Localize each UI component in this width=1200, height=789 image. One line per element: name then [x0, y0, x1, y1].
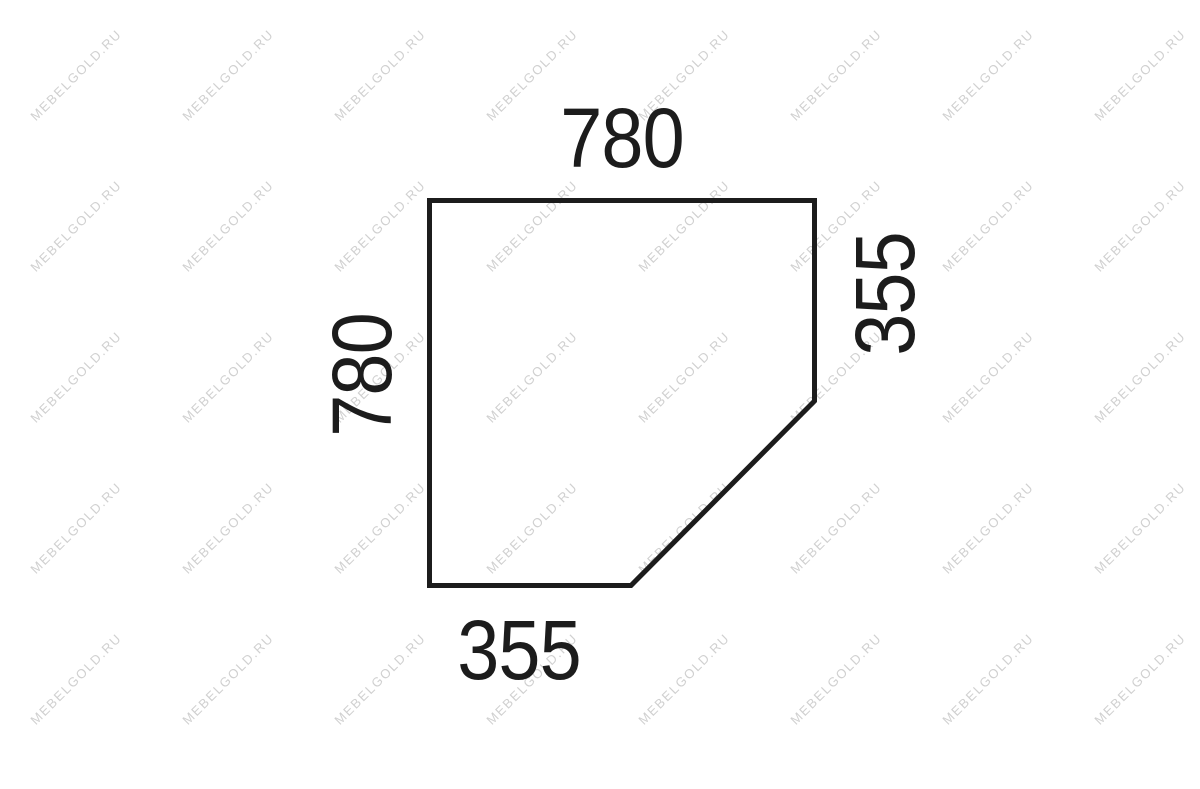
dimension-label-top: 780	[560, 96, 683, 180]
diagram-canvas: MEBELGOLD.RUMEBELGOLD.RUMEBELGOLD.RUMEBE…	[0, 0, 1200, 789]
dimension-label-right: 355	[843, 232, 927, 355]
dimension-label-bottom: 355	[457, 608, 580, 692]
panel-outline-shape	[430, 201, 815, 586]
dimension-label-left: 780	[320, 313, 404, 436]
